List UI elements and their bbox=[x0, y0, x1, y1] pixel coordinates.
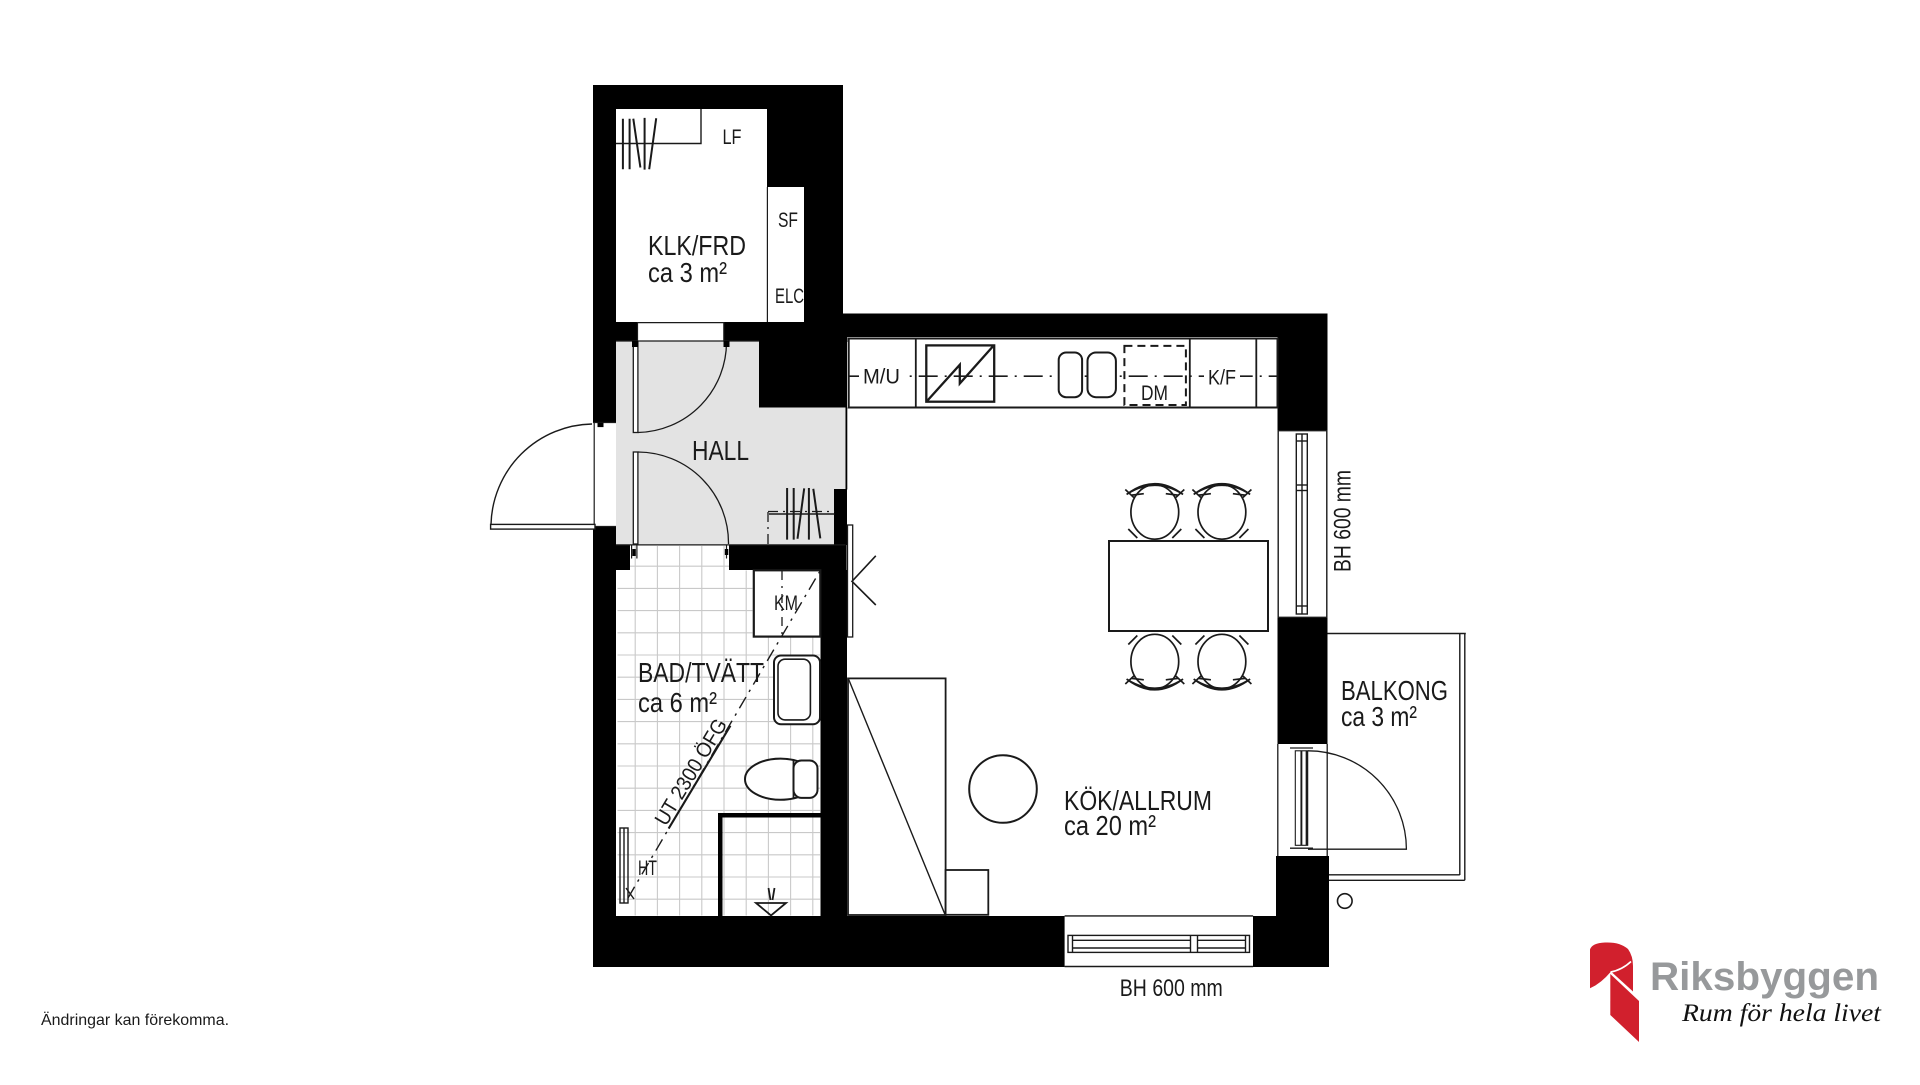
svg-text:K/F: K/F bbox=[1208, 366, 1236, 390]
svg-text:ca 3 m²: ca 3 m² bbox=[648, 257, 727, 288]
svg-text:BAD/TVÄTT: BAD/TVÄTT bbox=[638, 657, 764, 688]
svg-text:BH 600 mm: BH 600 mm bbox=[1330, 470, 1357, 572]
svg-text:ca 20 m²: ca 20 m² bbox=[1064, 810, 1156, 841]
svg-text:Rum för hela livet: Rum för hela livet bbox=[1681, 1000, 1882, 1027]
svg-text:ELC: ELC bbox=[775, 284, 804, 308]
svg-text:KM: KM bbox=[774, 591, 798, 615]
svg-text:Ändringar kan förekomma.: Ändringar kan förekomma. bbox=[41, 1011, 229, 1029]
svg-text:HALL: HALL bbox=[692, 435, 749, 466]
svg-text:LF: LF bbox=[723, 125, 742, 149]
svg-text:ca 3 m²: ca 3 m² bbox=[1341, 701, 1417, 732]
svg-text:Riksbyggen: Riksbyggen bbox=[1650, 955, 1879, 999]
svg-text:ca 6 m²: ca 6 m² bbox=[638, 687, 717, 718]
svg-text:BH 600 mm: BH 600 mm bbox=[1120, 975, 1223, 1002]
svg-text:DM: DM bbox=[1141, 381, 1168, 405]
svg-text:M/U: M/U bbox=[863, 365, 900, 389]
svg-text:HT: HT bbox=[638, 856, 657, 880]
svg-text:SF: SF bbox=[778, 208, 798, 232]
